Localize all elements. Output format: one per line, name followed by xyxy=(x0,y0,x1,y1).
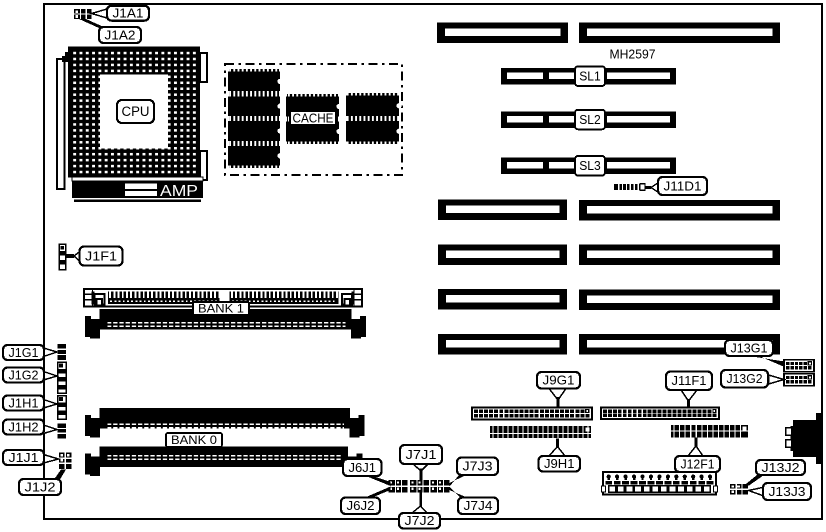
svg-text:J11D1: J11D1 xyxy=(664,178,702,193)
svg-text:J1H2: J1H2 xyxy=(9,419,39,434)
svg-text:J6J1: J6J1 xyxy=(349,460,377,475)
svg-text:J13J2: J13J2 xyxy=(762,460,800,475)
svg-text:J9H1: J9H1 xyxy=(544,456,575,471)
svg-text:BANK 0: BANK 0 xyxy=(171,433,217,447)
svg-text:BANK 1: BANK 1 xyxy=(198,302,244,316)
svg-text:J1J1: J1J1 xyxy=(9,450,39,465)
svg-text:J6J2: J6J2 xyxy=(347,498,375,513)
svg-text:J11F1: J11F1 xyxy=(672,373,707,388)
svg-text:J1A2: J1A2 xyxy=(105,27,136,42)
svg-text:CPU: CPU xyxy=(122,104,150,119)
svg-text:J13G1: J13G1 xyxy=(731,340,768,355)
svg-text:J1G2: J1G2 xyxy=(9,367,39,382)
svg-text:J12F1: J12F1 xyxy=(681,456,715,471)
svg-text:J1F1: J1F1 xyxy=(85,248,117,263)
svg-text:J7J3: J7J3 xyxy=(463,459,493,474)
svg-text:J13G2: J13G2 xyxy=(727,371,763,386)
svg-text:J1J2: J1J2 xyxy=(25,479,56,494)
svg-text:SL2: SL2 xyxy=(579,113,601,127)
svg-text:CACHE: CACHE xyxy=(293,111,334,125)
svg-text:SL1: SL1 xyxy=(579,70,601,84)
svg-text:J7J1: J7J1 xyxy=(406,447,437,462)
svg-text:MH2597: MH2597 xyxy=(610,47,656,62)
svg-text:J13J3: J13J3 xyxy=(769,484,806,499)
svg-text:J7J4: J7J4 xyxy=(464,498,493,513)
svg-text:J1G1: J1G1 xyxy=(9,345,39,360)
svg-text:J9G1: J9G1 xyxy=(543,373,575,388)
svg-text:J1A1: J1A1 xyxy=(113,6,144,21)
svg-text:J7J2: J7J2 xyxy=(405,513,435,528)
svg-text:J1H1: J1H1 xyxy=(9,395,39,410)
svg-text:AMP: AMP xyxy=(160,183,198,200)
svg-text:SL3: SL3 xyxy=(579,159,601,173)
